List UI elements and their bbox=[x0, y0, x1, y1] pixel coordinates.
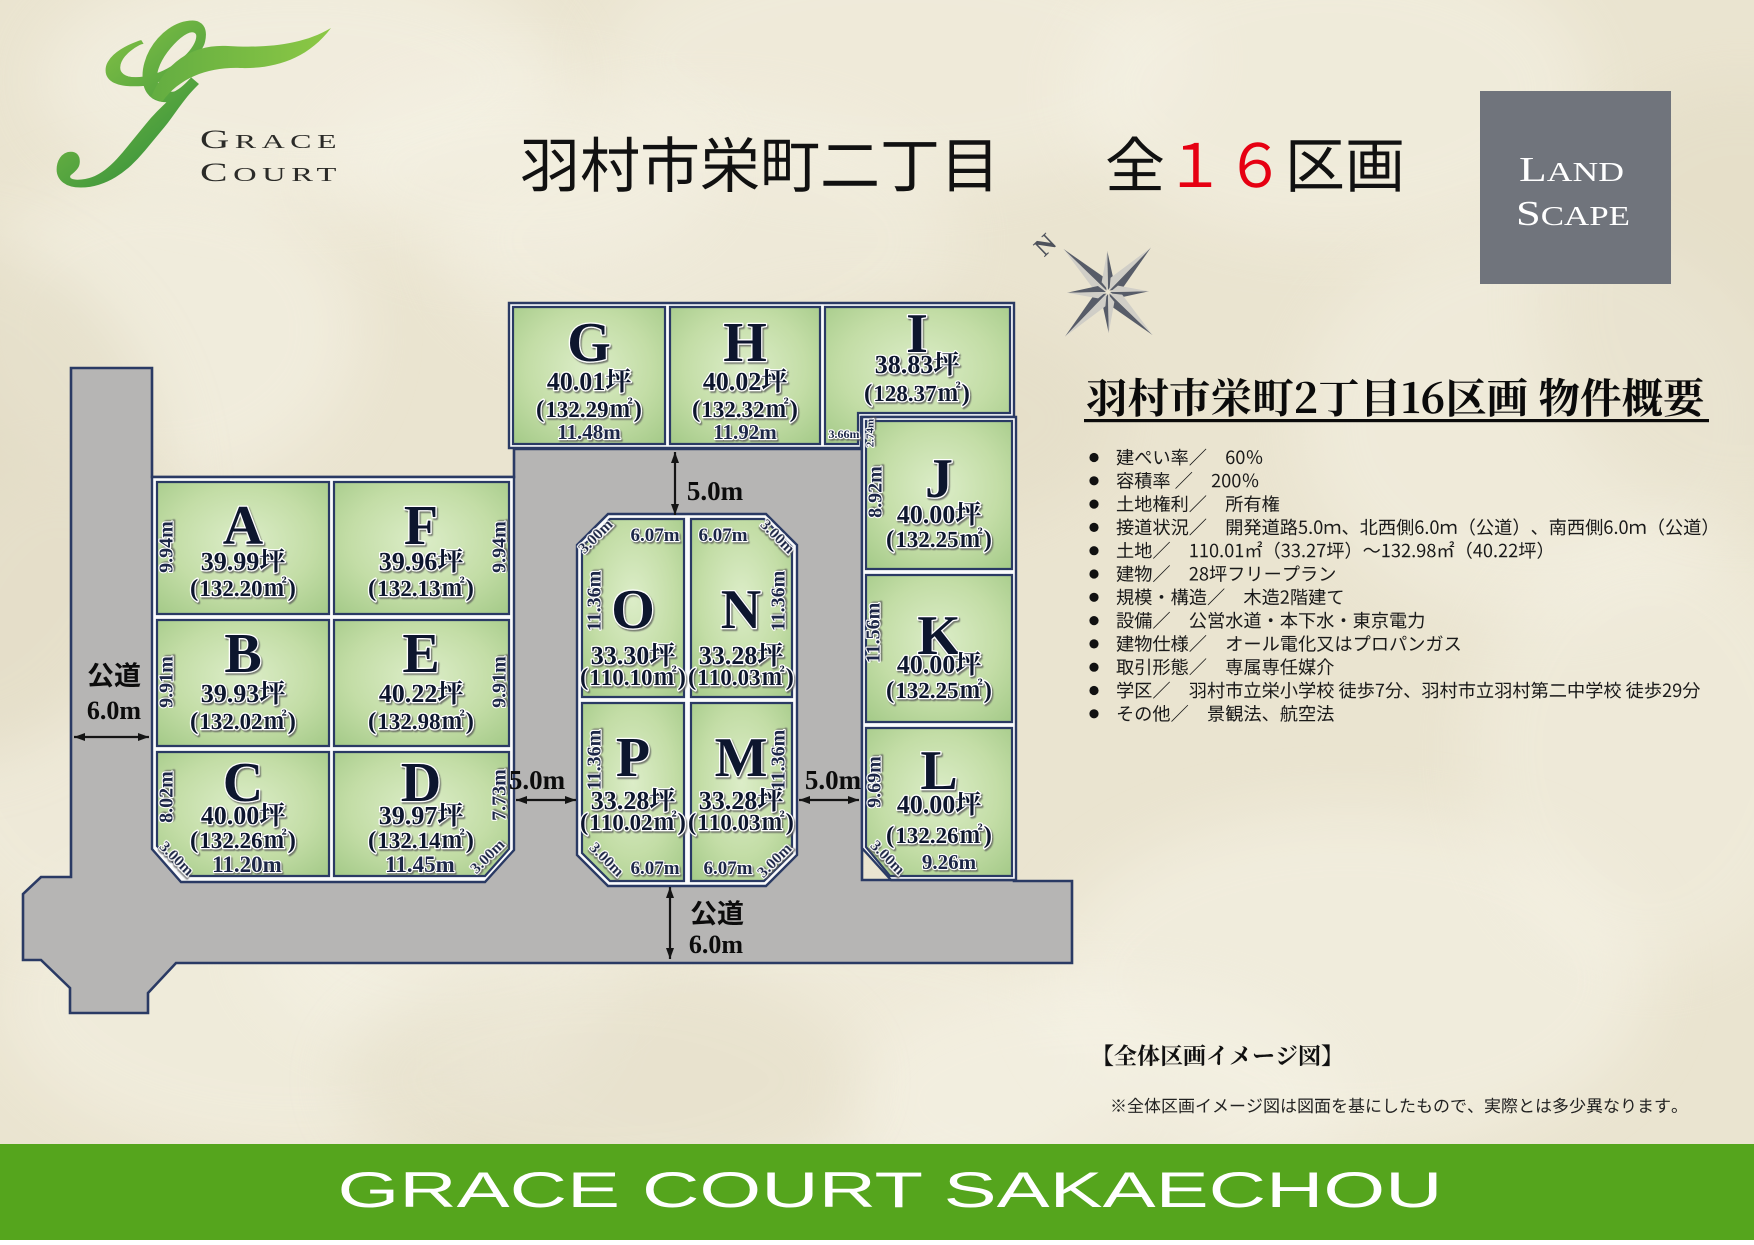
svg-text:D: D bbox=[401, 752, 441, 814]
svg-text:2.74m: 2.74m bbox=[865, 419, 877, 447]
svg-text:6.07m: 6.07m bbox=[630, 525, 679, 546]
svg-text:5.0m: 5.0m bbox=[509, 765, 566, 795]
svg-text:6.07m: 6.07m bbox=[630, 858, 679, 879]
svg-text:8.92m: 8.92m bbox=[865, 466, 887, 518]
svg-text:J: J bbox=[925, 448, 953, 510]
svg-text:5.0m: 5.0m bbox=[687, 476, 744, 506]
svg-text:11.36m: 11.36m bbox=[584, 570, 606, 631]
svg-text:L: L bbox=[920, 740, 957, 802]
svg-text:A: A bbox=[223, 495, 264, 557]
svg-text:GRACE COURT SAKAECHOU: GRACE COURT SAKAECHOU bbox=[338, 1162, 1443, 1218]
svg-text:SCAPE: SCAPE bbox=[1516, 194, 1630, 233]
svg-text:5.0m: 5.0m bbox=[805, 765, 862, 795]
svg-text:O: O bbox=[611, 579, 655, 641]
svg-text:11.45m: 11.45m bbox=[385, 852, 455, 877]
svg-text:G: G bbox=[567, 312, 611, 374]
svg-text:11.56m: 11.56m bbox=[863, 602, 885, 663]
svg-text:9.91m: 9.91m bbox=[156, 656, 178, 708]
svg-text:N: N bbox=[721, 579, 761, 641]
svg-text:6.0m: 6.0m bbox=[689, 930, 744, 959]
svg-text:H: H bbox=[723, 312, 767, 374]
svg-text:6.07m: 6.07m bbox=[698, 525, 747, 546]
svg-text:9.69m: 9.69m bbox=[864, 756, 886, 808]
svg-text:B: B bbox=[224, 623, 261, 685]
svg-text:11.48m: 11.48m bbox=[557, 420, 621, 444]
svg-text:11.36m: 11.36m bbox=[584, 729, 606, 790]
svg-text:9.91m: 9.91m bbox=[489, 656, 511, 708]
svg-text:M: M bbox=[715, 727, 768, 789]
svg-text:6.0m: 6.0m bbox=[87, 696, 142, 725]
svg-text:9.94m: 9.94m bbox=[156, 521, 178, 573]
svg-text:E: E bbox=[402, 623, 439, 685]
svg-text:3.66m: 3.66m bbox=[829, 427, 860, 441]
svg-text:P: P bbox=[616, 727, 650, 789]
svg-text:9.94m: 9.94m bbox=[489, 521, 511, 573]
svg-text:LAND: LAND bbox=[1519, 150, 1624, 189]
svg-text:11.36m: 11.36m bbox=[768, 729, 790, 790]
svg-text:6.07m: 6.07m bbox=[703, 858, 752, 879]
svg-text:11.92m: 11.92m bbox=[713, 420, 777, 444]
svg-text:7.73m: 7.73m bbox=[489, 769, 511, 821]
svg-text:8.02m: 8.02m bbox=[156, 771, 178, 823]
svg-text:C: C bbox=[223, 752, 263, 814]
svg-text:F: F bbox=[404, 495, 438, 557]
svg-text:11.20m: 11.20m bbox=[212, 852, 282, 877]
svg-text:11.36m: 11.36m bbox=[768, 570, 790, 631]
svg-text:9.26m: 9.26m bbox=[922, 850, 977, 874]
